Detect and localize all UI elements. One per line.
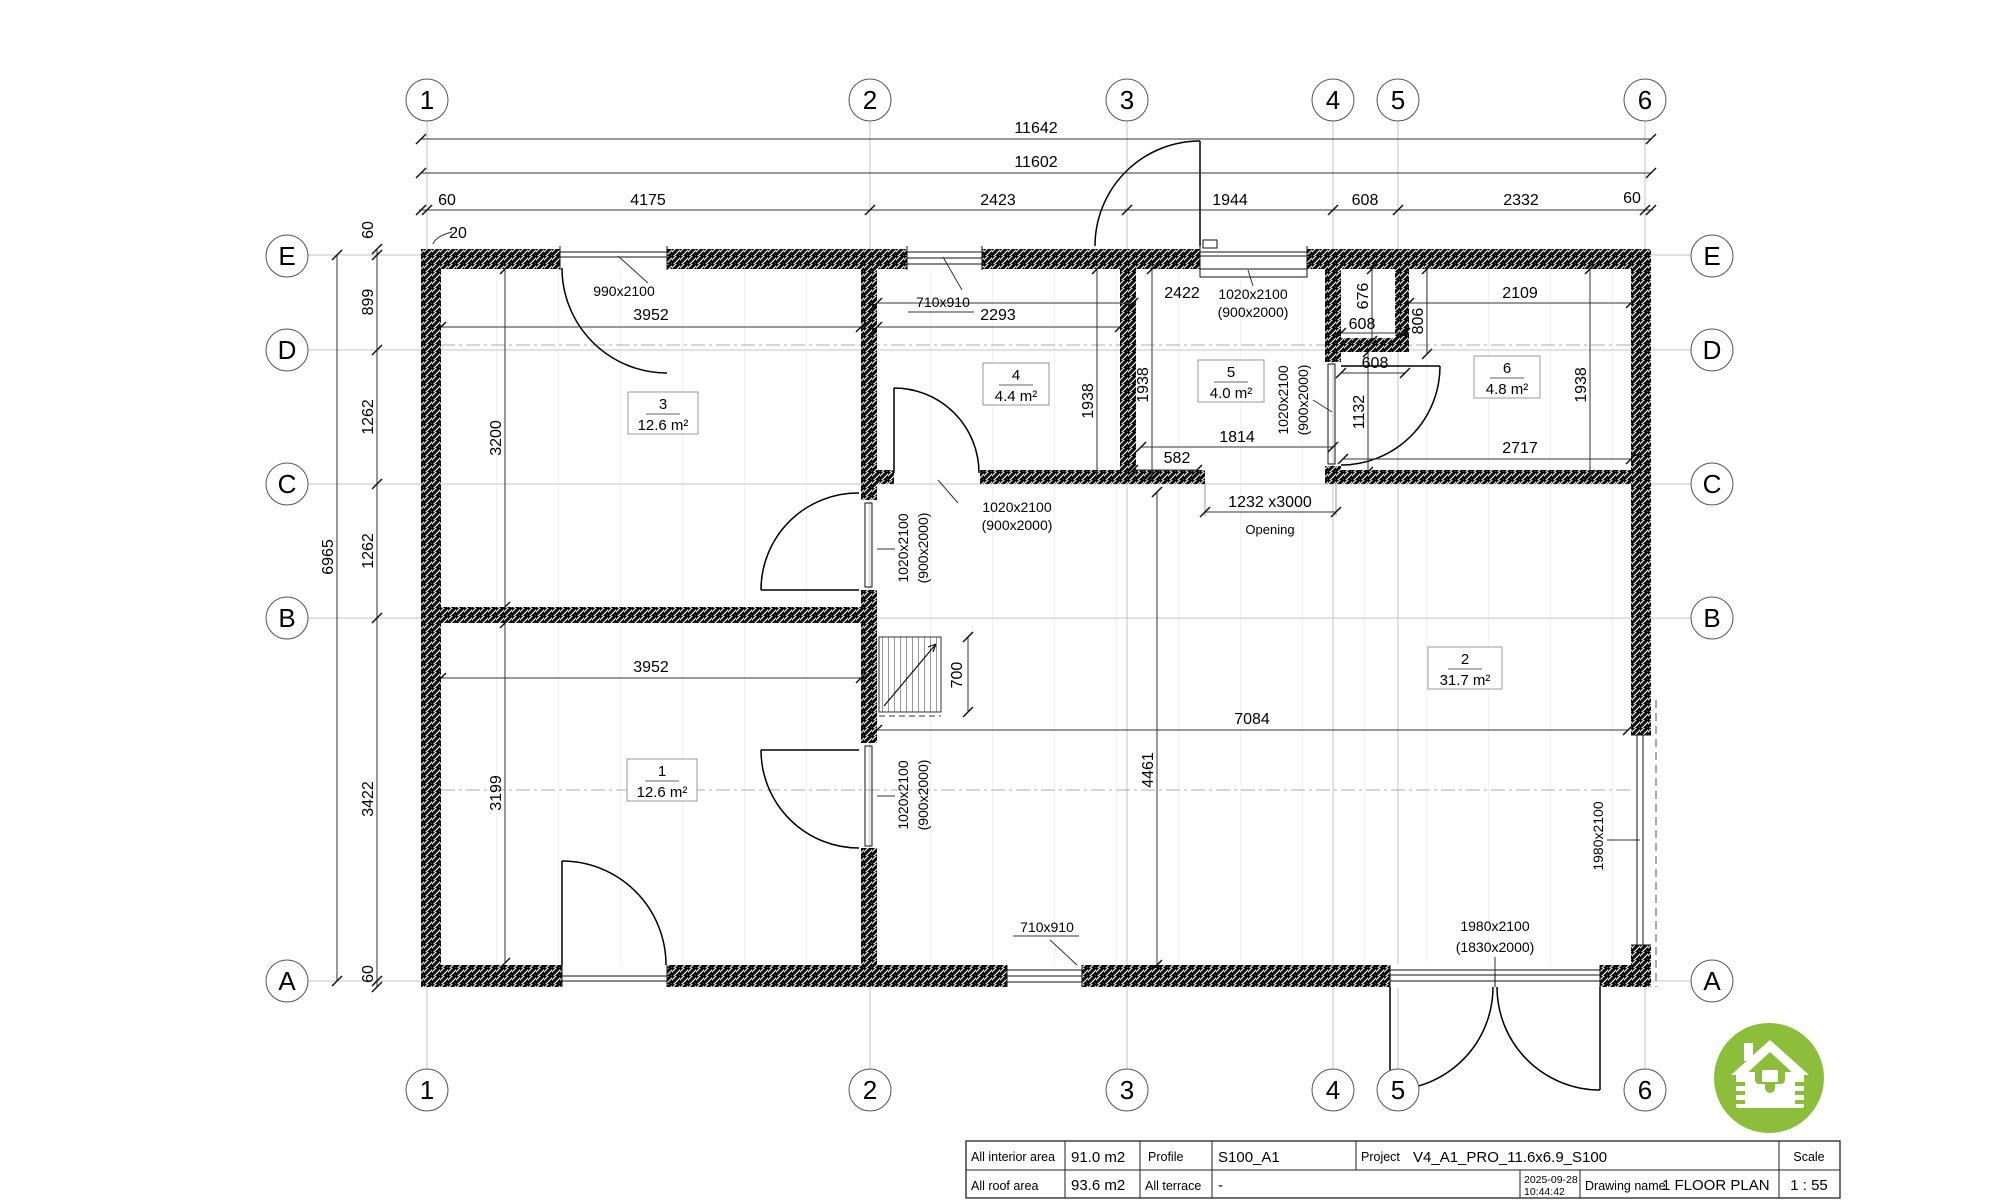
window-bottom <box>1007 964 1082 988</box>
room-number: 4 <box>1012 367 1020 384</box>
door-label-terrace: 1980x2100 <box>1460 918 1530 934</box>
axis-col-4-bottom: 4 <box>1326 1075 1340 1105</box>
entrance-door <box>1200 240 1307 278</box>
dim-top-seg: 1944 <box>1212 192 1248 209</box>
axis-col-5-bottom: 5 <box>1391 1075 1405 1105</box>
door-label-room5: 1020x2100 <box>1275 365 1291 435</box>
dim-room6-bottom-width: 2717 <box>1502 440 1538 457</box>
dim-top-total: 11642 <box>1014 120 1057 137</box>
room-number: 3 <box>659 396 667 413</box>
axis-row-c: C <box>278 469 297 499</box>
room-tag-4: 4 4.4 m² <box>983 363 1049 405</box>
dim-room4-height: 1938 <box>1080 383 1097 419</box>
title-block: All interior area 91.0 m2 Profile S100_A… <box>966 1141 1840 1198</box>
room-tag-2: 2 31.7 m² <box>1428 647 1502 689</box>
axis-row-d-right: D <box>1703 335 1722 365</box>
axis-row-a-right: A <box>1703 966 1721 996</box>
door-label-entrance: 1020x2100 <box>1218 286 1288 302</box>
door-label-room1-sub: (900x2000) <box>915 760 931 831</box>
axis-row-c-right: C <box>1703 469 1722 499</box>
axis-row-e: E <box>278 241 295 271</box>
room-tag-1: 1 12.6 m² <box>627 759 697 801</box>
dim-room3-height: 3200 <box>488 420 505 456</box>
tb-interior-label: All interior area <box>971 1150 1055 1164</box>
door-label-room4: 1020x2100 <box>982 499 1052 515</box>
axis-col-3: 3 <box>1120 85 1134 115</box>
axis-col-4: 4 <box>1326 85 1340 115</box>
tb-profile-label: Profile <box>1148 1150 1183 1164</box>
company-logo <box>1714 1023 1824 1133</box>
door-label-room3: 1020x2100 <box>895 513 911 583</box>
stairs <box>879 637 941 716</box>
dim-left-seg: 1262 <box>360 533 377 569</box>
dim-left-seg: 3422 <box>360 781 377 817</box>
room-tag-5: 5 4.0 m² <box>1198 360 1264 402</box>
floor-plan-drawing: 1 2 3 4 5 6 1 2 3 4 5 6 E D C B A E D C … <box>0 0 2000 1200</box>
dim-room5-left-height: 1938 <box>1135 367 1152 403</box>
door-room3-top <box>560 246 667 270</box>
dim-room6-height: 1938 <box>1573 367 1590 403</box>
tb-draw-value: 1 FLOOR PLAN <box>1662 1177 1770 1194</box>
axis-col-5: 5 <box>1391 85 1405 115</box>
axis-row-b: B <box>278 603 295 633</box>
dim-opening-label: Opening <box>1245 522 1294 537</box>
axis-row-a: A <box>278 966 296 996</box>
door-room1-bottom <box>562 964 667 988</box>
axis-col-1-bottom: 1 <box>420 1075 434 1105</box>
dim-room6-top-width: 2109 <box>1502 285 1538 302</box>
dim-left-seg: 1262 <box>360 399 377 435</box>
room-tag-3: 3 12.6 m² <box>628 392 698 434</box>
dim-niche-height: 676 <box>1355 283 1372 310</box>
axis-col-6: 6 <box>1638 85 1652 115</box>
dim-wall-gap: 582 <box>1164 450 1191 467</box>
room-area: 4.4 m² <box>995 388 1038 405</box>
dim-top-seg: 4175 <box>630 192 666 209</box>
door-label-room4-sub: (900x2000) <box>982 517 1053 533</box>
dim-niche-depth: 806 <box>1410 308 1427 335</box>
dim-top-seg: 2423 <box>980 192 1016 209</box>
room-area: 4.8 m² <box>1486 381 1529 398</box>
room-number: 5 <box>1227 364 1235 381</box>
tb-time: 10:44:42 <box>1524 1186 1565 1198</box>
room-tag-6: 6 4.8 m² <box>1474 356 1540 398</box>
room-area: 12.6 m² <box>637 784 688 801</box>
dim-top-overall: 11602 <box>1014 154 1057 171</box>
dim-room2-height: 4461 <box>1140 752 1157 788</box>
dim-stair-width: 700 <box>949 662 966 689</box>
tb-date: 2025-09-28 <box>1524 1174 1578 1186</box>
dim-room5-width: 1814 <box>1219 429 1255 446</box>
room-number: 6 <box>1503 360 1511 377</box>
door-label-room5-sub: (900x2000) <box>1295 365 1311 436</box>
dim-hall-top-width: 2422 <box>1164 285 1200 302</box>
room-number: 1 <box>658 763 666 780</box>
axis-col-6-bottom: 6 <box>1638 1075 1652 1105</box>
tb-project-value: V4_A1_PRO_11.6x6.9_S100 <box>1413 1149 1607 1166</box>
dim-room1-height: 3199 <box>488 775 505 811</box>
door-label-right-wall: 1980x2100 <box>1590 801 1606 871</box>
room-area: 12.6 m² <box>638 417 689 434</box>
dim-left-total: 6965 <box>320 539 337 575</box>
floor-plan-page: 1 2 3 4 5 6 1 2 3 4 5 6 E D C B A E D C … <box>0 0 2000 1200</box>
dim-hall-height: 1132 <box>1351 395 1368 430</box>
tb-scale-label: Scale <box>1793 1150 1824 1164</box>
dim-left-seg: 60 <box>360 965 377 983</box>
room-area: 31.7 m² <box>1440 672 1491 689</box>
window-label-710-top: 710x910 <box>916 294 970 310</box>
window-label-710-bottom: 710x910 <box>1020 919 1074 935</box>
door-label-990-top: 990x2100 <box>593 283 655 299</box>
dim-room2-width: 7084 <box>1234 711 1270 728</box>
dim-room1-width: 3952 <box>633 659 669 676</box>
room-number: 2 <box>1461 651 1469 668</box>
door-label-room3-sub: (900x2000) <box>915 513 931 584</box>
tb-project-label: Project <box>1361 1150 1400 1164</box>
axis-row-e-right: E <box>1703 241 1720 271</box>
axis-col-3-bottom: 3 <box>1120 1075 1134 1105</box>
axis-col-2: 2 <box>863 85 877 115</box>
door-label-terrace-sub: (1830x2000) <box>1456 939 1535 955</box>
dim-niche-width: 608 <box>1349 316 1376 333</box>
tb-roof-label: All roof area <box>971 1179 1038 1193</box>
axis-col-1: 1 <box>420 85 434 115</box>
tb-interior-value: 91.0 m2 <box>1071 1149 1125 1166</box>
dim-room3-width: 3952 <box>633 307 669 324</box>
room-area: 4.0 m² <box>1210 385 1253 402</box>
dim-left-seg: 899 <box>360 289 377 316</box>
dim-top-seg: 608 <box>1352 192 1379 209</box>
dim-wall-offset: 20 <box>449 225 467 242</box>
tb-profile-value: S100_A1 <box>1218 1149 1280 1166</box>
dim-left-seg: 60 <box>360 221 377 239</box>
tb-draw-label: Drawing name <box>1585 1179 1666 1193</box>
door-swing-entrance <box>1095 141 1200 246</box>
tb-terrace-value: - <box>1218 1177 1223 1194</box>
dim-opening-size: 1232 x3000 <box>1228 494 1312 511</box>
door-swing-terrace-right <box>1497 987 1600 1090</box>
dim-top-seg: 2332 <box>1503 192 1539 209</box>
dim-top-seg: 60 <box>438 192 456 209</box>
tb-terrace-label: All terrace <box>1145 1179 1201 1193</box>
door-label-entrance-sub: (900x2000) <box>1218 304 1289 320</box>
door-label-room1: 1020x2100 <box>895 760 911 830</box>
window-top <box>907 246 982 270</box>
axis-col-2-bottom: 2 <box>863 1075 877 1105</box>
dim-room4-width: 2293 <box>980 307 1016 324</box>
dim-top-seg: 60 <box>1623 190 1641 207</box>
axis-row-b-right: B <box>1703 603 1720 633</box>
tb-roof-value: 93.6 m2 <box>1071 1177 1125 1194</box>
dim-hall-width: 608 <box>1362 355 1389 372</box>
tb-scale-value: 1 : 55 <box>1790 1177 1828 1194</box>
axis-row-d: D <box>278 335 297 365</box>
